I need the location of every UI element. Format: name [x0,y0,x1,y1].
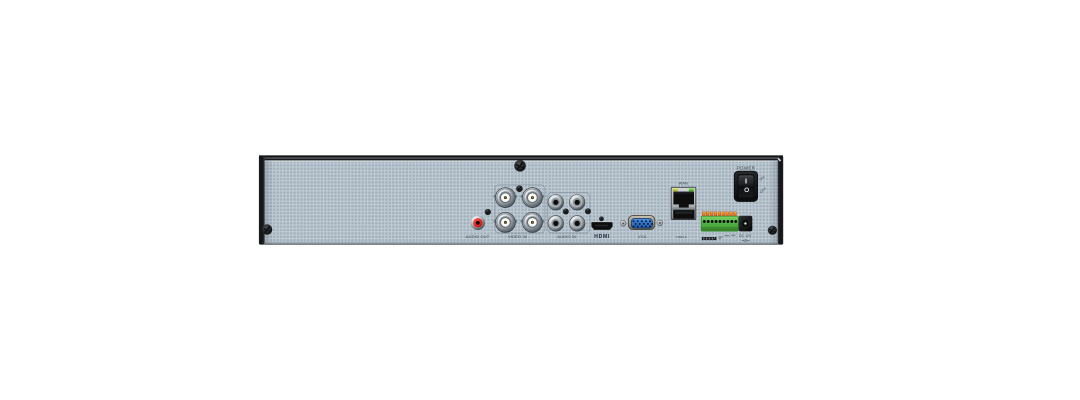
svg-text:DC 12V: DC 12V [739,234,752,238]
svg-text:POWER: POWER [737,165,755,170]
svg-text:USB3.0: USB3.0 [676,235,687,239]
svg-text:HDMI: HDMI [594,234,610,240]
svg-text:AUDIO OUT: AUDIO OUT [466,234,490,239]
svg-text:AUDIO IN: AUDIO IN [557,234,576,239]
svg-text:VGA: VGA [638,235,647,239]
svg-text:VIDEO IN: VIDEO IN [508,234,527,239]
svg-text:WAN: WAN [679,182,688,186]
